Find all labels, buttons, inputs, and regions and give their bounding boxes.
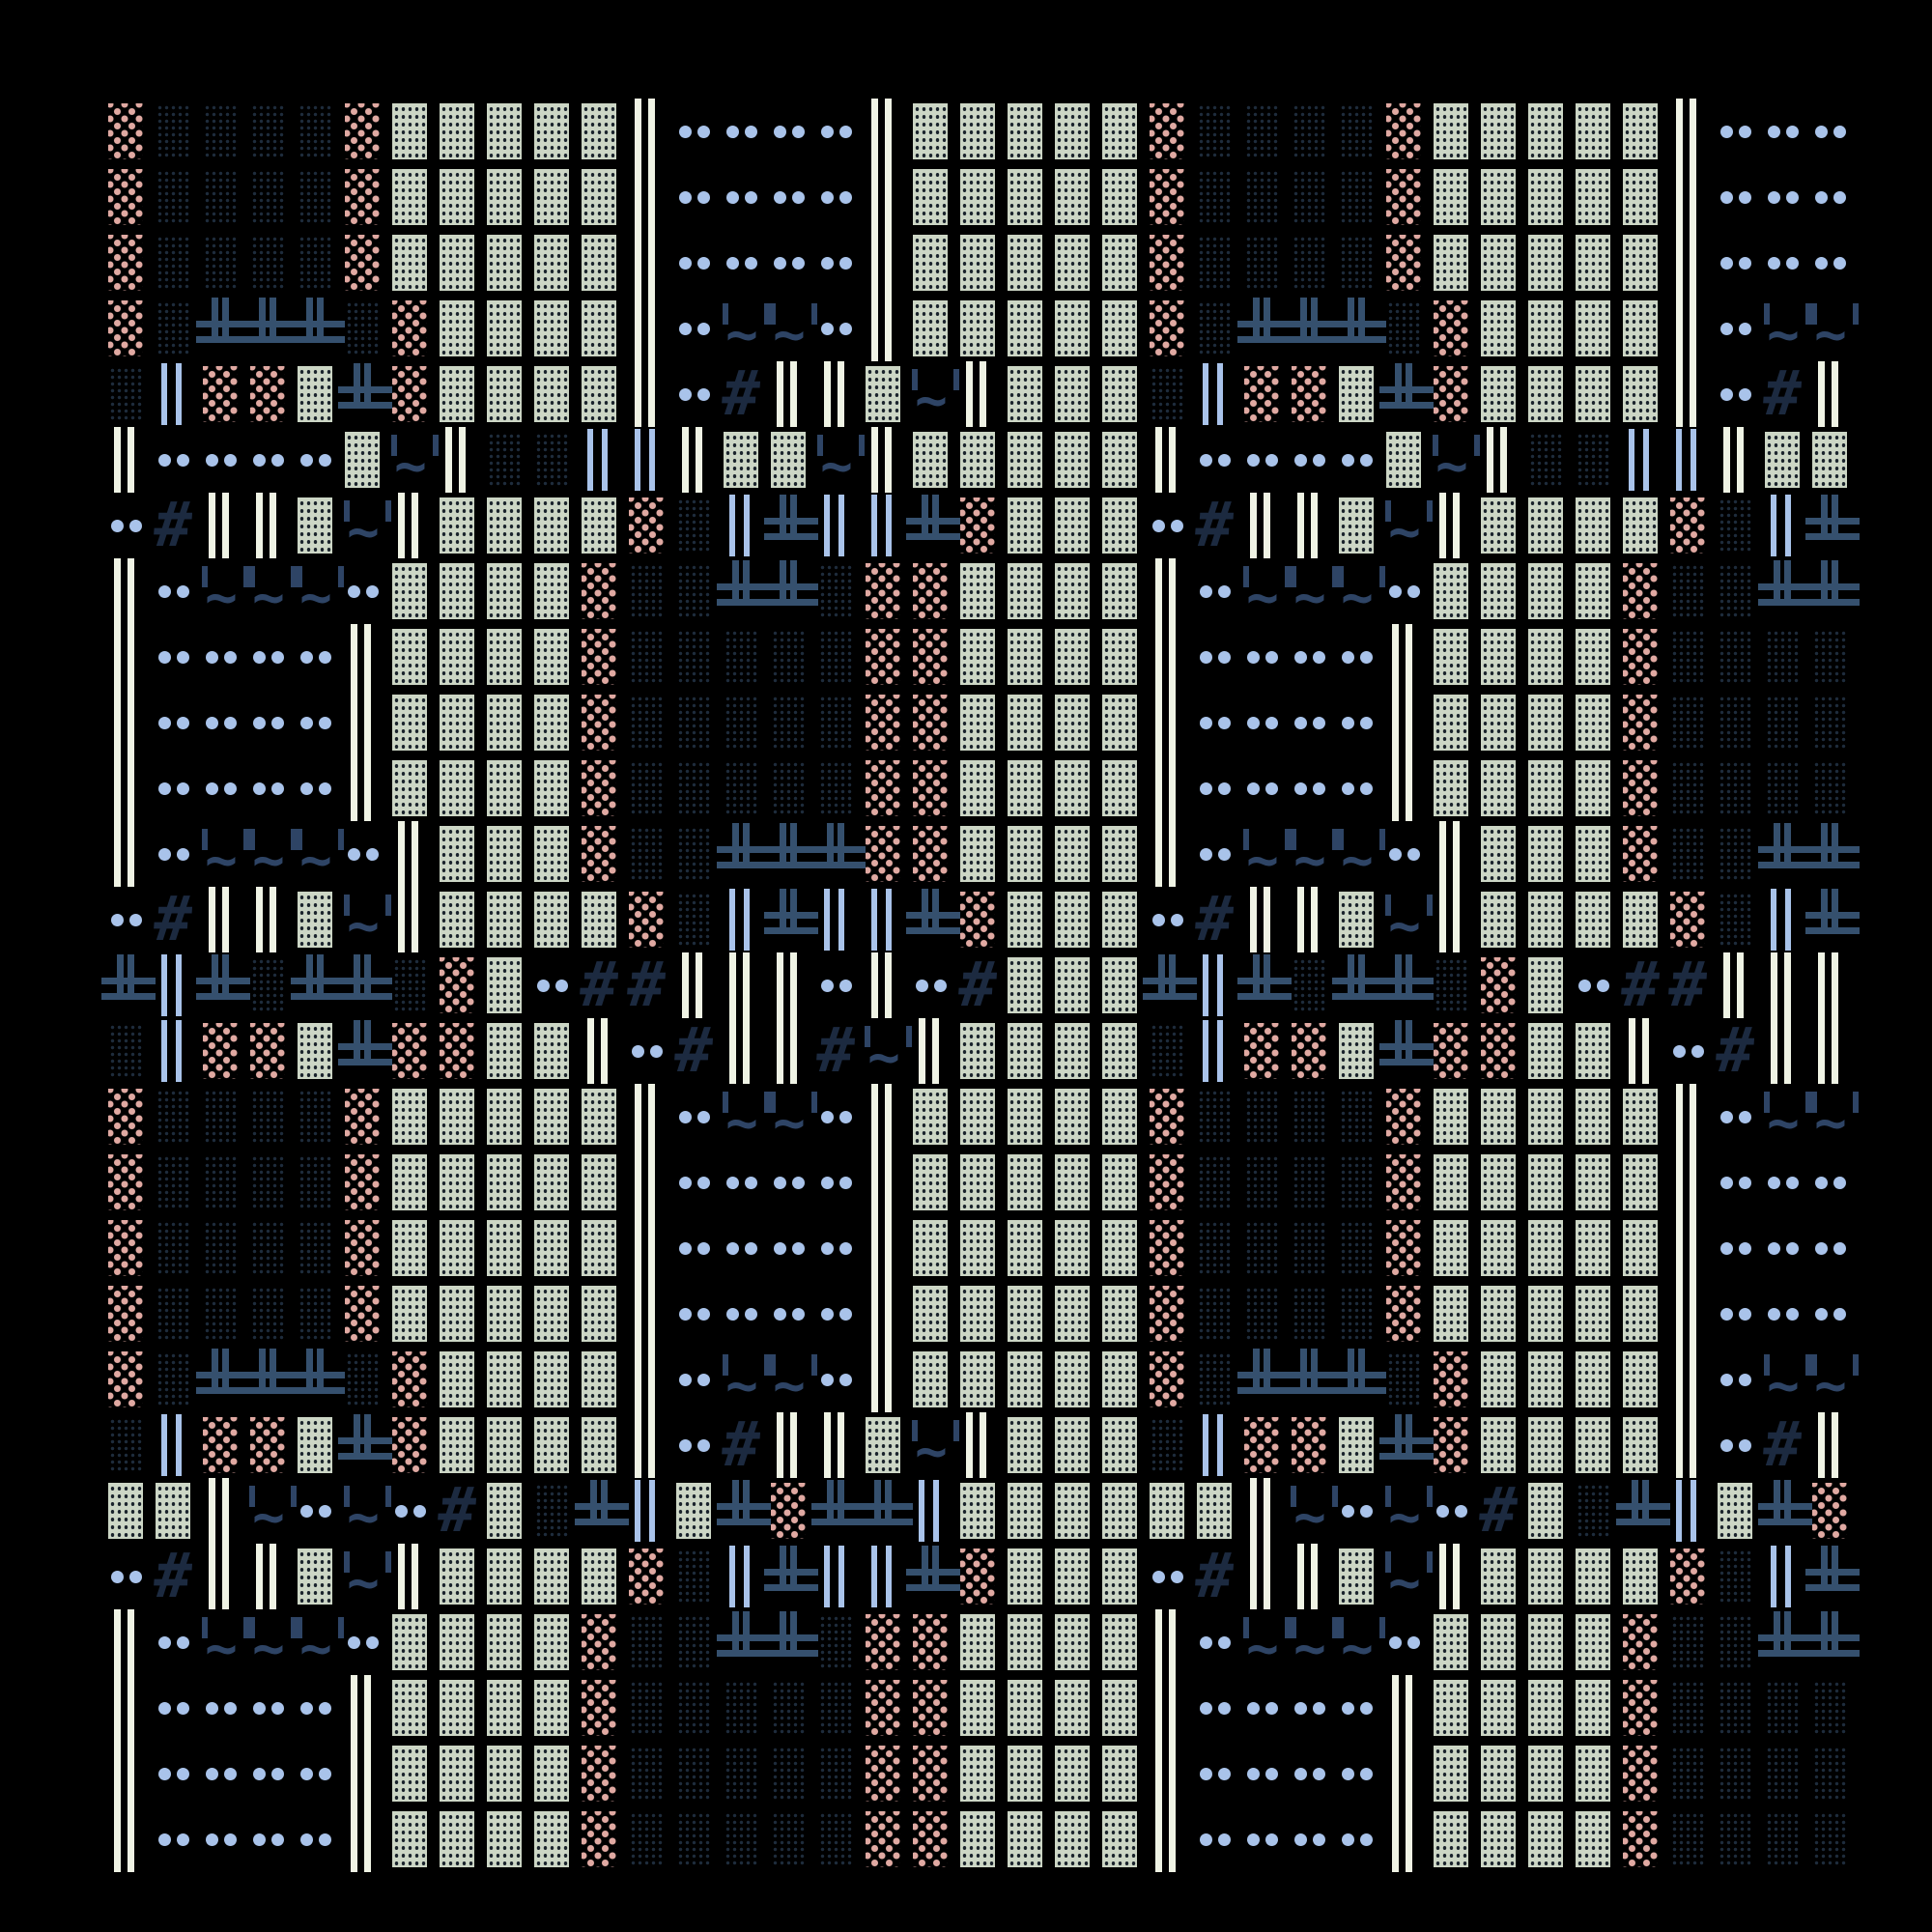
sage-waffle-tile [487,1351,522,1407]
navy-cross-glyph [250,300,285,356]
pink-dot-tile [629,497,664,554]
navy-dot-tile [1150,1023,1184,1079]
sage-waffle-tile [1528,1483,1563,1539]
navy-dot-tile [818,1680,853,1736]
sage-waffle-tile [1576,1023,1610,1079]
navy-dot-tile [771,629,806,685]
dot-pair [1292,695,1326,751]
navy-dot-tile [1244,1286,1279,1342]
pink-dot-tile [345,169,380,225]
sage-waffle-tile [1339,1023,1374,1079]
sage-waffle-tile [534,1614,569,1670]
cream-double-bar [724,957,758,1013]
tilde-glyph: ~ [1765,300,1800,356]
navy-dot-tile [1718,1746,1752,1802]
navy-cross-glyph [724,1483,758,1539]
navy-dot-tile [818,760,853,816]
sage-waffle-tile [1008,1089,1042,1145]
dot-pair [1150,892,1184,948]
sage-waffle-tile [440,300,474,356]
sage-waffle-tile [1055,1680,1090,1736]
dot-pair [108,892,143,948]
dot-pair [298,629,332,685]
dot-pair [913,957,948,1013]
sage-waffle-tile [1576,1811,1610,1867]
sage-waffle-tile [913,1286,948,1342]
sage-waffle-tile [487,169,522,225]
navy-dot-tile [771,1811,806,1867]
navy-dot-tile [1244,235,1279,291]
pink-dot-tile [203,366,238,422]
pink-dot-tile [345,1286,380,1342]
navy-dot-tile [1718,695,1752,751]
dot-pair [298,1483,332,1539]
sage-waffle-tile [1528,892,1563,948]
cream-double-bar [866,1089,900,1145]
cream-double-bar [1386,629,1421,685]
sage-waffle-tile [582,300,616,356]
navy-dot-tile [298,1220,332,1276]
cream-double-bar [108,629,143,685]
cream-double-bar [866,1351,900,1407]
sage-waffle-tile [534,1811,569,1867]
sage-waffle-tile [1528,760,1563,816]
hash-glyph: # [154,1548,192,1605]
sage-waffle-tile [1197,1483,1232,1539]
dot-pair [1339,695,1374,751]
sage-waffle-tile [534,1220,569,1276]
pink-dot-tile [1386,169,1421,225]
sage-waffle-tile [534,695,569,751]
sage-waffle-tile [298,1023,332,1079]
dot-pair [392,1483,427,1539]
pink-dot-tile [392,300,427,356]
dot-pair [771,169,806,225]
navy-cross-glyph [203,300,238,356]
blue-double-bar [724,1548,758,1605]
sage-waffle-tile [1102,497,1137,554]
navy-cross-glyph [771,892,806,948]
pink-dot-tile [866,826,900,882]
sage-waffle-tile [1528,235,1563,291]
sage-waffle-tile [1434,1089,1468,1145]
sage-waffle-tile [1481,1548,1516,1605]
cream-double-bar [1292,1548,1326,1605]
blue-double-bar [1197,957,1232,1013]
sage-waffle-tile [298,1548,332,1605]
blue-double-bar [1197,1023,1232,1079]
sage-waffle-tile [1055,300,1090,356]
sage-waffle-tile [487,1746,522,1802]
dot-pair [250,760,285,816]
dot-pair [1718,366,1752,422]
cream-double-bar [392,497,427,554]
cream-double-bar [629,169,664,225]
cream-double-bar [1244,892,1279,948]
pink-dot-tile [1623,695,1658,751]
sage-waffle-tile [298,366,332,422]
pink-dot-tile [392,366,427,422]
navy-dot-tile [818,695,853,751]
navy-cross-glyph [1386,1023,1421,1079]
pink-dot-tile [582,1614,616,1670]
pink-dot-tile [1292,366,1326,422]
dot-pair [1197,695,1232,751]
tilde-wave: ~ [1387,505,1422,559]
pink-dot-tile [582,760,616,816]
cream-double-bar [1150,432,1184,488]
tilde-wave: ~ [1387,1556,1422,1610]
navy-cross-glyph [1244,1351,1279,1407]
sage-waffle-tile [1623,1154,1658,1210]
cream-double-bar [108,826,143,882]
dot-pair [724,169,758,225]
blue-double-bar [1765,892,1800,948]
sage-waffle-tile [392,1746,427,1802]
sage-waffle-tile [440,497,474,554]
navy-dot-tile [818,1746,853,1802]
sage-waffle-tile [1528,826,1563,882]
sage-waffle-tile [487,1023,522,1079]
pink-dot-tile [1623,1680,1658,1736]
sage-waffle-tile [440,1548,474,1605]
sage-waffle-tile [1055,1548,1090,1605]
navy-dot-tile [298,1154,332,1210]
dot-pair [818,1220,853,1276]
cream-double-bar [866,1154,900,1210]
dot-pair [1292,432,1326,488]
sage-waffle-tile [392,760,427,816]
sage-waffle-tile [1528,103,1563,159]
sage-waffle-tile [1055,1154,1090,1210]
navy-dot-tile [156,1220,190,1276]
pink-dot-tile [913,629,948,685]
sage-waffle-tile [1008,235,1042,291]
sage-waffle-tile [1055,497,1090,554]
cream-double-bar [1150,563,1184,619]
sage-waffle-tile [1386,432,1421,488]
pink-dot-tile [1386,1286,1421,1342]
blue-double-bar [724,892,758,948]
dot-pair [1718,300,1752,356]
sage-waffle-tile [487,695,522,751]
dot-pair [1718,1220,1752,1276]
sage-waffle-tile [487,497,522,554]
cream-double-bar [629,1417,664,1473]
sage-waffle-tile [1528,695,1563,751]
sage-waffle-tile [1481,300,1516,356]
tilde-wave: ~ [1245,571,1280,625]
sage-waffle-tile [1055,957,1090,1013]
sage-waffle-tile [582,1220,616,1276]
blue-double-bar [724,497,758,554]
pink-dot-tile [582,1746,616,1802]
blue-double-bar [1623,432,1658,488]
tilde-wave: ~ [1387,1491,1422,1545]
blue-double-bar [866,892,900,948]
hash-glyph: # [1195,892,1234,948]
sage-waffle-tile [1576,1154,1610,1210]
navy-dot-tile [1765,1680,1800,1736]
navy-dot-tile [676,1746,711,1802]
sage-waffle-tile [582,1548,616,1605]
pink-dot-tile [1670,892,1705,948]
blue-double-bar [866,497,900,554]
navy-dot-tile [1434,957,1468,1013]
tilde-wave: ~ [1813,1096,1848,1151]
pink-dot-tile [866,760,900,816]
navy-dot-tile [1812,1746,1847,1802]
sage-waffle-tile [582,366,616,422]
sage-waffle-tile [913,1351,948,1407]
sage-waffle-tile [440,235,474,291]
dot-pair [771,1220,806,1276]
cream-double-bar [1150,1811,1184,1867]
sage-waffle-tile [534,103,569,159]
navy-cross-glyph [1812,1614,1847,1670]
navy-dot-tile [156,1286,190,1342]
cream-double-bar [866,432,900,488]
sage-waffle-tile [1481,366,1516,422]
sage-waffle-tile [487,957,522,1013]
sage-waffle-tile [1008,1746,1042,1802]
navy-dot-tile [1528,432,1563,488]
pink-dot-tile [108,103,143,159]
tilde-wave: ~ [867,1031,901,1085]
cream-double-bar [1434,1548,1468,1605]
sage-waffle-tile [487,366,522,422]
navy-dot-tile [1339,1154,1374,1210]
cream-double-bar [1150,760,1184,816]
navy-dot-tile [724,1811,758,1867]
navy-dot-tile [1812,629,1847,685]
cream-double-bar [1670,103,1705,159]
hash-glyph: # [1763,366,1802,422]
dot-pair [156,826,190,882]
navy-cross-glyph [771,563,806,619]
pink-dot-tile [345,235,380,291]
sage-waffle-tile [960,1680,995,1736]
cream-double-bar [108,432,143,488]
navy-dot-tile [1812,1680,1847,1736]
dot-pair [1197,1680,1232,1736]
dot-pair [818,169,853,225]
pink-dot-tile [203,1023,238,1079]
sage-waffle-tile [1055,1746,1090,1802]
navy-dot-tile [203,1154,238,1210]
dot-pair [1765,169,1800,225]
sage-waffle-tile [534,1680,569,1736]
sage-waffle-tile [1528,563,1563,619]
tilde-wave: ~ [1340,834,1375,888]
tilde-glyph: ~ [250,1614,285,1670]
navy-dot-tile [156,169,190,225]
navy-dot-tile [818,563,853,619]
pink-dot-tile [866,1811,900,1867]
sage-waffle-tile [440,1811,474,1867]
tilde-glyph: ~ [1386,1548,1421,1605]
sage-waffle-tile [1623,1351,1658,1407]
navy-dot-tile [1812,695,1847,751]
sage-waffle-tile [1008,826,1042,882]
tilde-glyph: ~ [345,497,380,554]
navy-cross-glyph [1244,957,1279,1013]
cream-double-bar [108,563,143,619]
sage-waffle-tile [1434,1811,1468,1867]
sage-waffle-tile [1481,103,1516,159]
pink-dot-tile [108,1351,143,1407]
cream-double-bar [960,1417,995,1473]
cream-double-bar [1812,957,1847,1013]
sage-waffle-tile [960,235,995,291]
navy-dot-tile [1292,957,1326,1013]
pink-dot-tile [108,169,143,225]
hash-glyph: # [1195,497,1234,554]
navy-dot-tile [1197,1089,1232,1145]
cream-double-bar [629,366,664,422]
sage-waffle-tile [1434,760,1468,816]
navy-cross-glyph [771,826,806,882]
navy-dot-tile [1197,103,1232,159]
sage-waffle-tile [440,1746,474,1802]
dot-pair [1197,1746,1232,1802]
dot-pair [1812,235,1847,291]
navy-dot-tile [724,760,758,816]
dot-pair [1718,1286,1752,1342]
tilde-glyph: ~ [724,1351,758,1407]
pink-dot-tile [1150,103,1184,159]
cream-double-bar [392,826,427,882]
sage-waffle-tile [108,1483,143,1539]
dot-pair [1812,1286,1847,1342]
navy-cross-glyph [1244,300,1279,356]
navy-dot-tile [1718,1614,1752,1670]
sage-waffle-tile [1339,497,1374,554]
sage-waffle-tile [1055,1286,1090,1342]
pink-dot-tile [629,892,664,948]
navy-dot-tile [1670,1614,1705,1670]
cream-double-bar [1670,366,1705,422]
dot-pair [1339,432,1374,488]
sage-waffle-tile [440,1417,474,1473]
tilde-glyph: ~ [1292,826,1326,882]
sage-waffle-tile [960,760,995,816]
navy-dot-tile [108,366,143,422]
hash-glyph: # [1479,1483,1518,1539]
navy-dot-tile [1718,826,1752,882]
sage-waffle-tile [1623,892,1658,948]
cream-double-bar [629,103,664,159]
navy-cross-glyph [1812,1548,1847,1605]
sage-waffle-tile [1055,103,1090,159]
tilde-wave: ~ [298,571,333,625]
dot-pair [1244,695,1279,751]
cream-double-bar [629,1286,664,1342]
tilde-glyph: ~ [1812,300,1847,356]
pink-dot-tile [582,629,616,685]
navy-dot-tile [1150,1417,1184,1473]
sage-waffle-tile [298,1417,332,1473]
pink-dot-tile [1150,1286,1184,1342]
navy-dot-tile [298,235,332,291]
sage-waffle-tile [487,103,522,159]
tilde-wave: ~ [393,440,428,494]
sage-waffle-tile [1102,366,1137,422]
dot-pair [1812,1220,1847,1276]
sage-waffle-tile [156,1483,190,1539]
sage-waffle-tile [1008,957,1042,1013]
sage-waffle-tile [1576,1680,1610,1736]
navy-dot-tile [629,563,664,619]
dot-pair [156,1811,190,1867]
tilde-glyph: ~ [1292,1614,1326,1670]
pink-dot-tile [1386,1154,1421,1210]
navy-cross-glyph [345,1023,380,1079]
navy-dot-tile [203,1286,238,1342]
sage-waffle-tile [1055,235,1090,291]
cream-double-bar [1765,957,1800,1013]
sage-waffle-tile [1623,1548,1658,1605]
tilde-glyph: ~ [345,892,380,948]
sage-waffle-tile [392,1089,427,1145]
sage-waffle-tile [1434,1614,1468,1670]
tilde-glyph: ~ [250,563,285,619]
cream-double-bar [1386,760,1421,816]
navy-dot-tile [1812,760,1847,816]
sage-waffle-tile [534,366,569,422]
cream-double-bar [1434,497,1468,554]
sage-waffle-tile [913,235,948,291]
cream-double-bar [1718,957,1752,1013]
sage-waffle-tile [1102,826,1137,882]
dot-pair [818,235,853,291]
pink-dot-tile [1481,957,1516,1013]
dot-pair [724,1286,758,1342]
dot-pair [1244,629,1279,685]
pink-dot-tile [913,563,948,619]
tilde-glyph: ~ [1292,563,1326,619]
navy-cross-glyph [866,1483,900,1539]
navy-dot-tile [1718,1548,1752,1605]
tilde-wave: ~ [298,1622,333,1676]
navy-dot-tile [1292,235,1326,291]
tilde-glyph: ~ [1765,1089,1800,1145]
pink-dot-tile [1434,1351,1468,1407]
cream-double-bar [1812,366,1847,422]
sage-waffle-tile [1055,1220,1090,1276]
dot-pair [156,1614,190,1670]
navy-cross-glyph [1292,1351,1326,1407]
sage-waffle-tile [1481,695,1516,751]
navy-dot-tile [1670,1746,1705,1802]
sage-waffle-tile [1008,1680,1042,1736]
navy-cross-glyph [771,497,806,554]
navy-cross-glyph [913,892,948,948]
sage-waffle-tile [582,1417,616,1473]
sage-waffle-tile [1008,432,1042,488]
navy-dot-tile [1718,760,1752,816]
tilde-glyph: ~ [1765,1351,1800,1407]
tilde-wave: ~ [724,1359,759,1413]
sage-waffle-tile [440,1286,474,1342]
sage-waffle-tile [440,760,474,816]
tilde-wave: ~ [772,1096,807,1151]
cream-double-bar [1150,1614,1184,1670]
sage-waffle-tile [1008,1286,1042,1342]
navy-dot-tile [108,1023,143,1079]
tilde-glyph: ~ [1386,497,1421,554]
dot-pair [1150,1548,1184,1605]
